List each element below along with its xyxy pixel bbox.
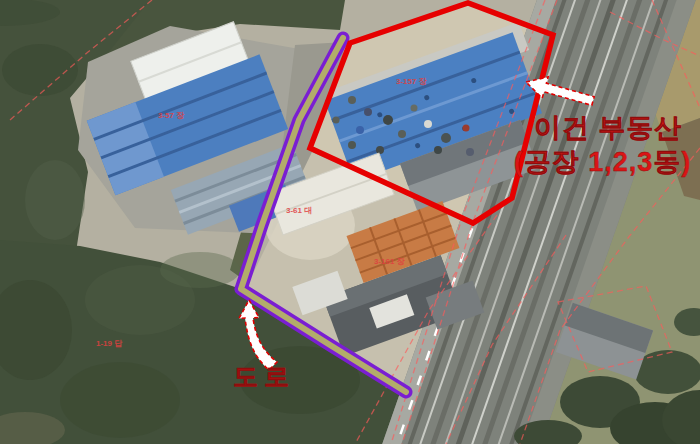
- parcel-label: 3-57 장: [158, 110, 184, 121]
- parcel-label: 3-161 장: [374, 256, 405, 267]
- parcel-label: 3-157 장: [396, 76, 427, 87]
- property-annotation-line2: (공장 1,2,3동): [500, 146, 700, 178]
- aerial-map-screenshot: 이건 부동산 (공장 1,2,3동) 도로 3-157 장 3-57 장 3-6…: [0, 0, 700, 444]
- parcel-label: 3-61 대: [286, 205, 312, 216]
- parcel-label: 1-19 답: [96, 338, 122, 349]
- road-annotation: 도로: [233, 360, 295, 393]
- property-annotation-line1: 이건 부동산: [512, 112, 700, 144]
- satellite-base-layer: [0, 0, 700, 444]
